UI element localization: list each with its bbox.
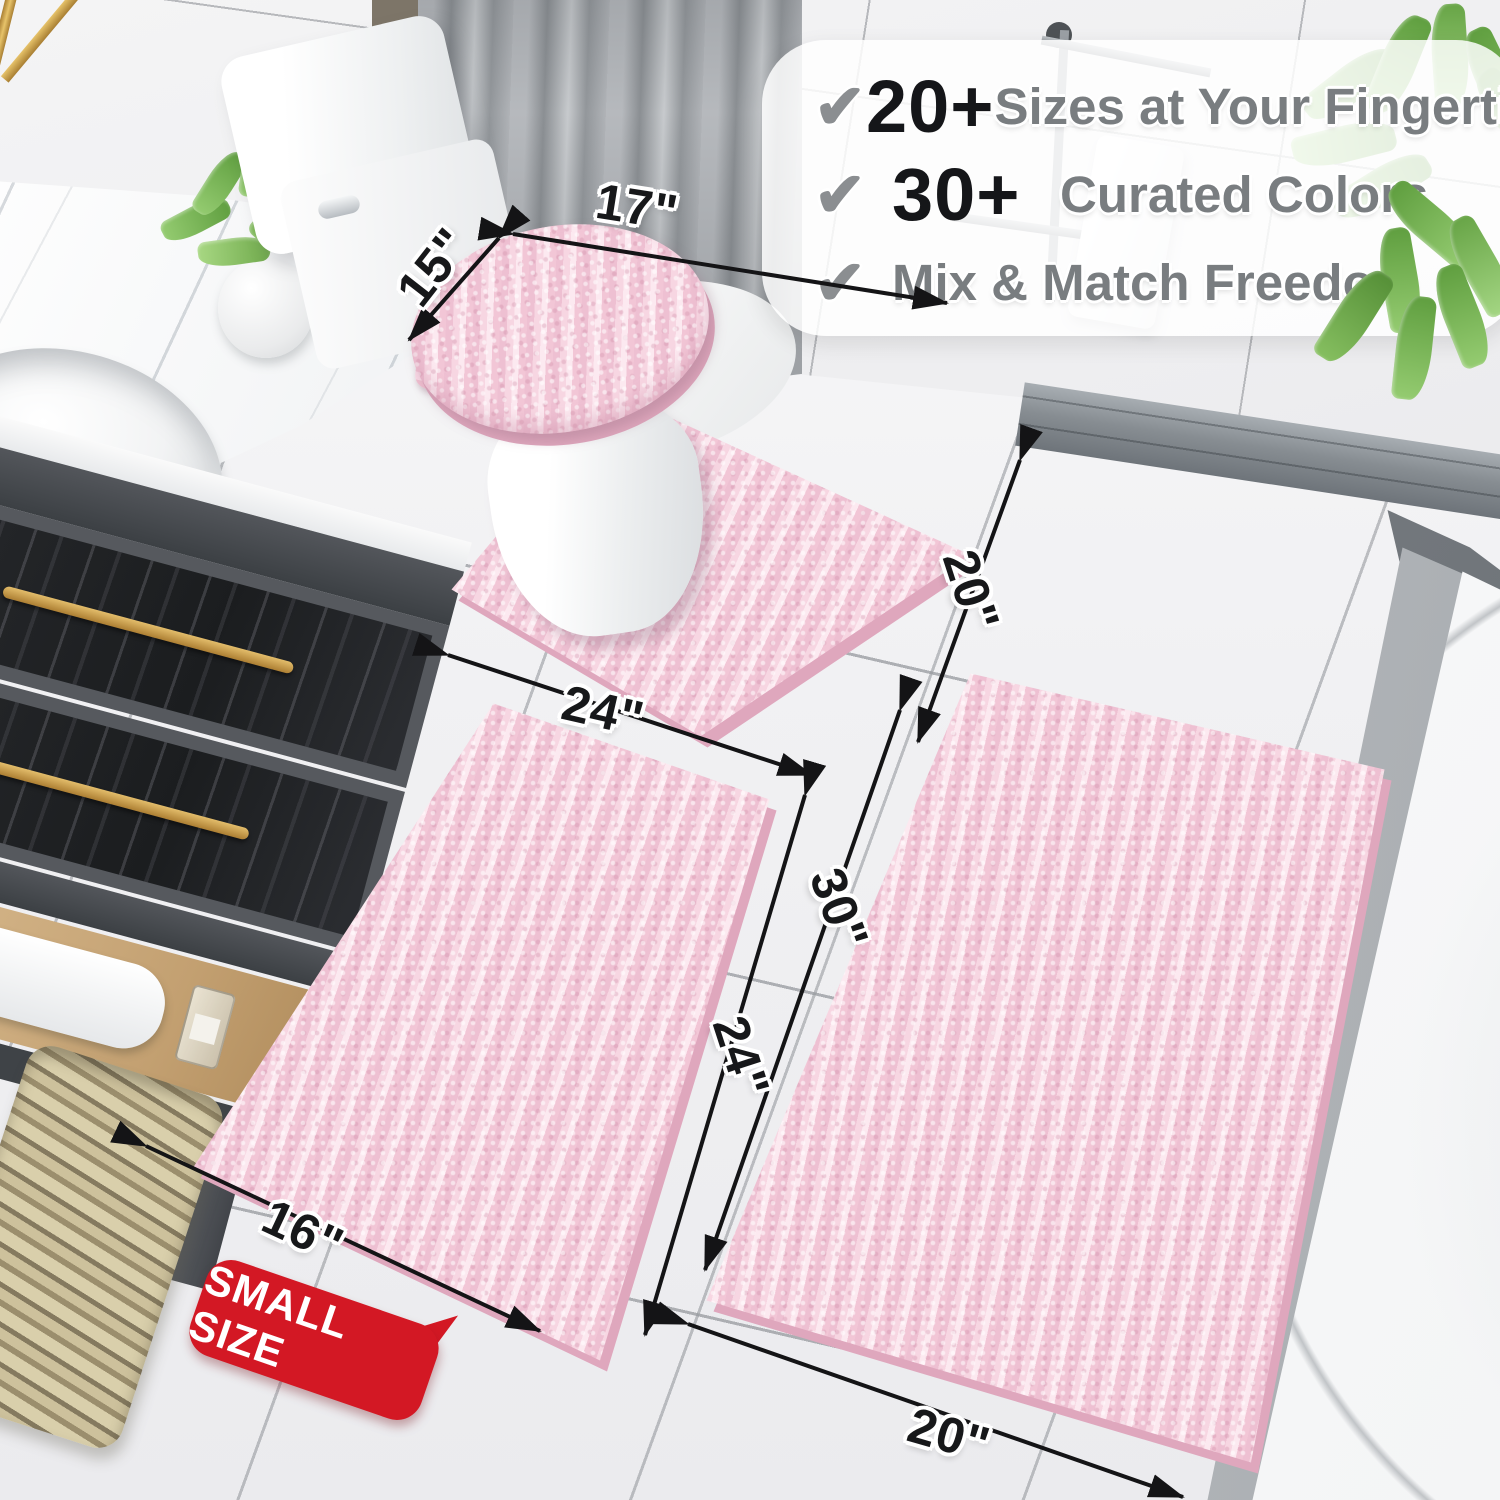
check-icon: ✔ xyxy=(814,158,892,231)
checklist-row: ✔ 30+ Curated Colors xyxy=(814,152,1500,236)
feature-value: 30+ xyxy=(892,152,1060,237)
check-icon: ✔ xyxy=(814,246,892,319)
feature-label: Mix & Match Freedom xyxy=(892,253,1419,312)
glass-bottle xyxy=(174,984,237,1071)
checklist-row: ✔ Mix & Match Freedom xyxy=(814,240,1500,324)
product-image-canvas: ✔ 20+ Sizes at Your Fingertips ✔ 30+ Cur… xyxy=(0,0,1500,1500)
feature-label: Sizes at Your Fingertips xyxy=(994,77,1500,136)
feature-checklist-box: ✔ 20+ Sizes at Your Fingertips ✔ 30+ Cur… xyxy=(762,40,1500,336)
check-icon: ✔ xyxy=(814,70,866,143)
feature-value: 20+ xyxy=(866,64,995,149)
checklist-row: ✔ 20+ Sizes at Your Fingertips xyxy=(814,64,1500,148)
feature-label: Curated Colors xyxy=(1060,165,1428,224)
